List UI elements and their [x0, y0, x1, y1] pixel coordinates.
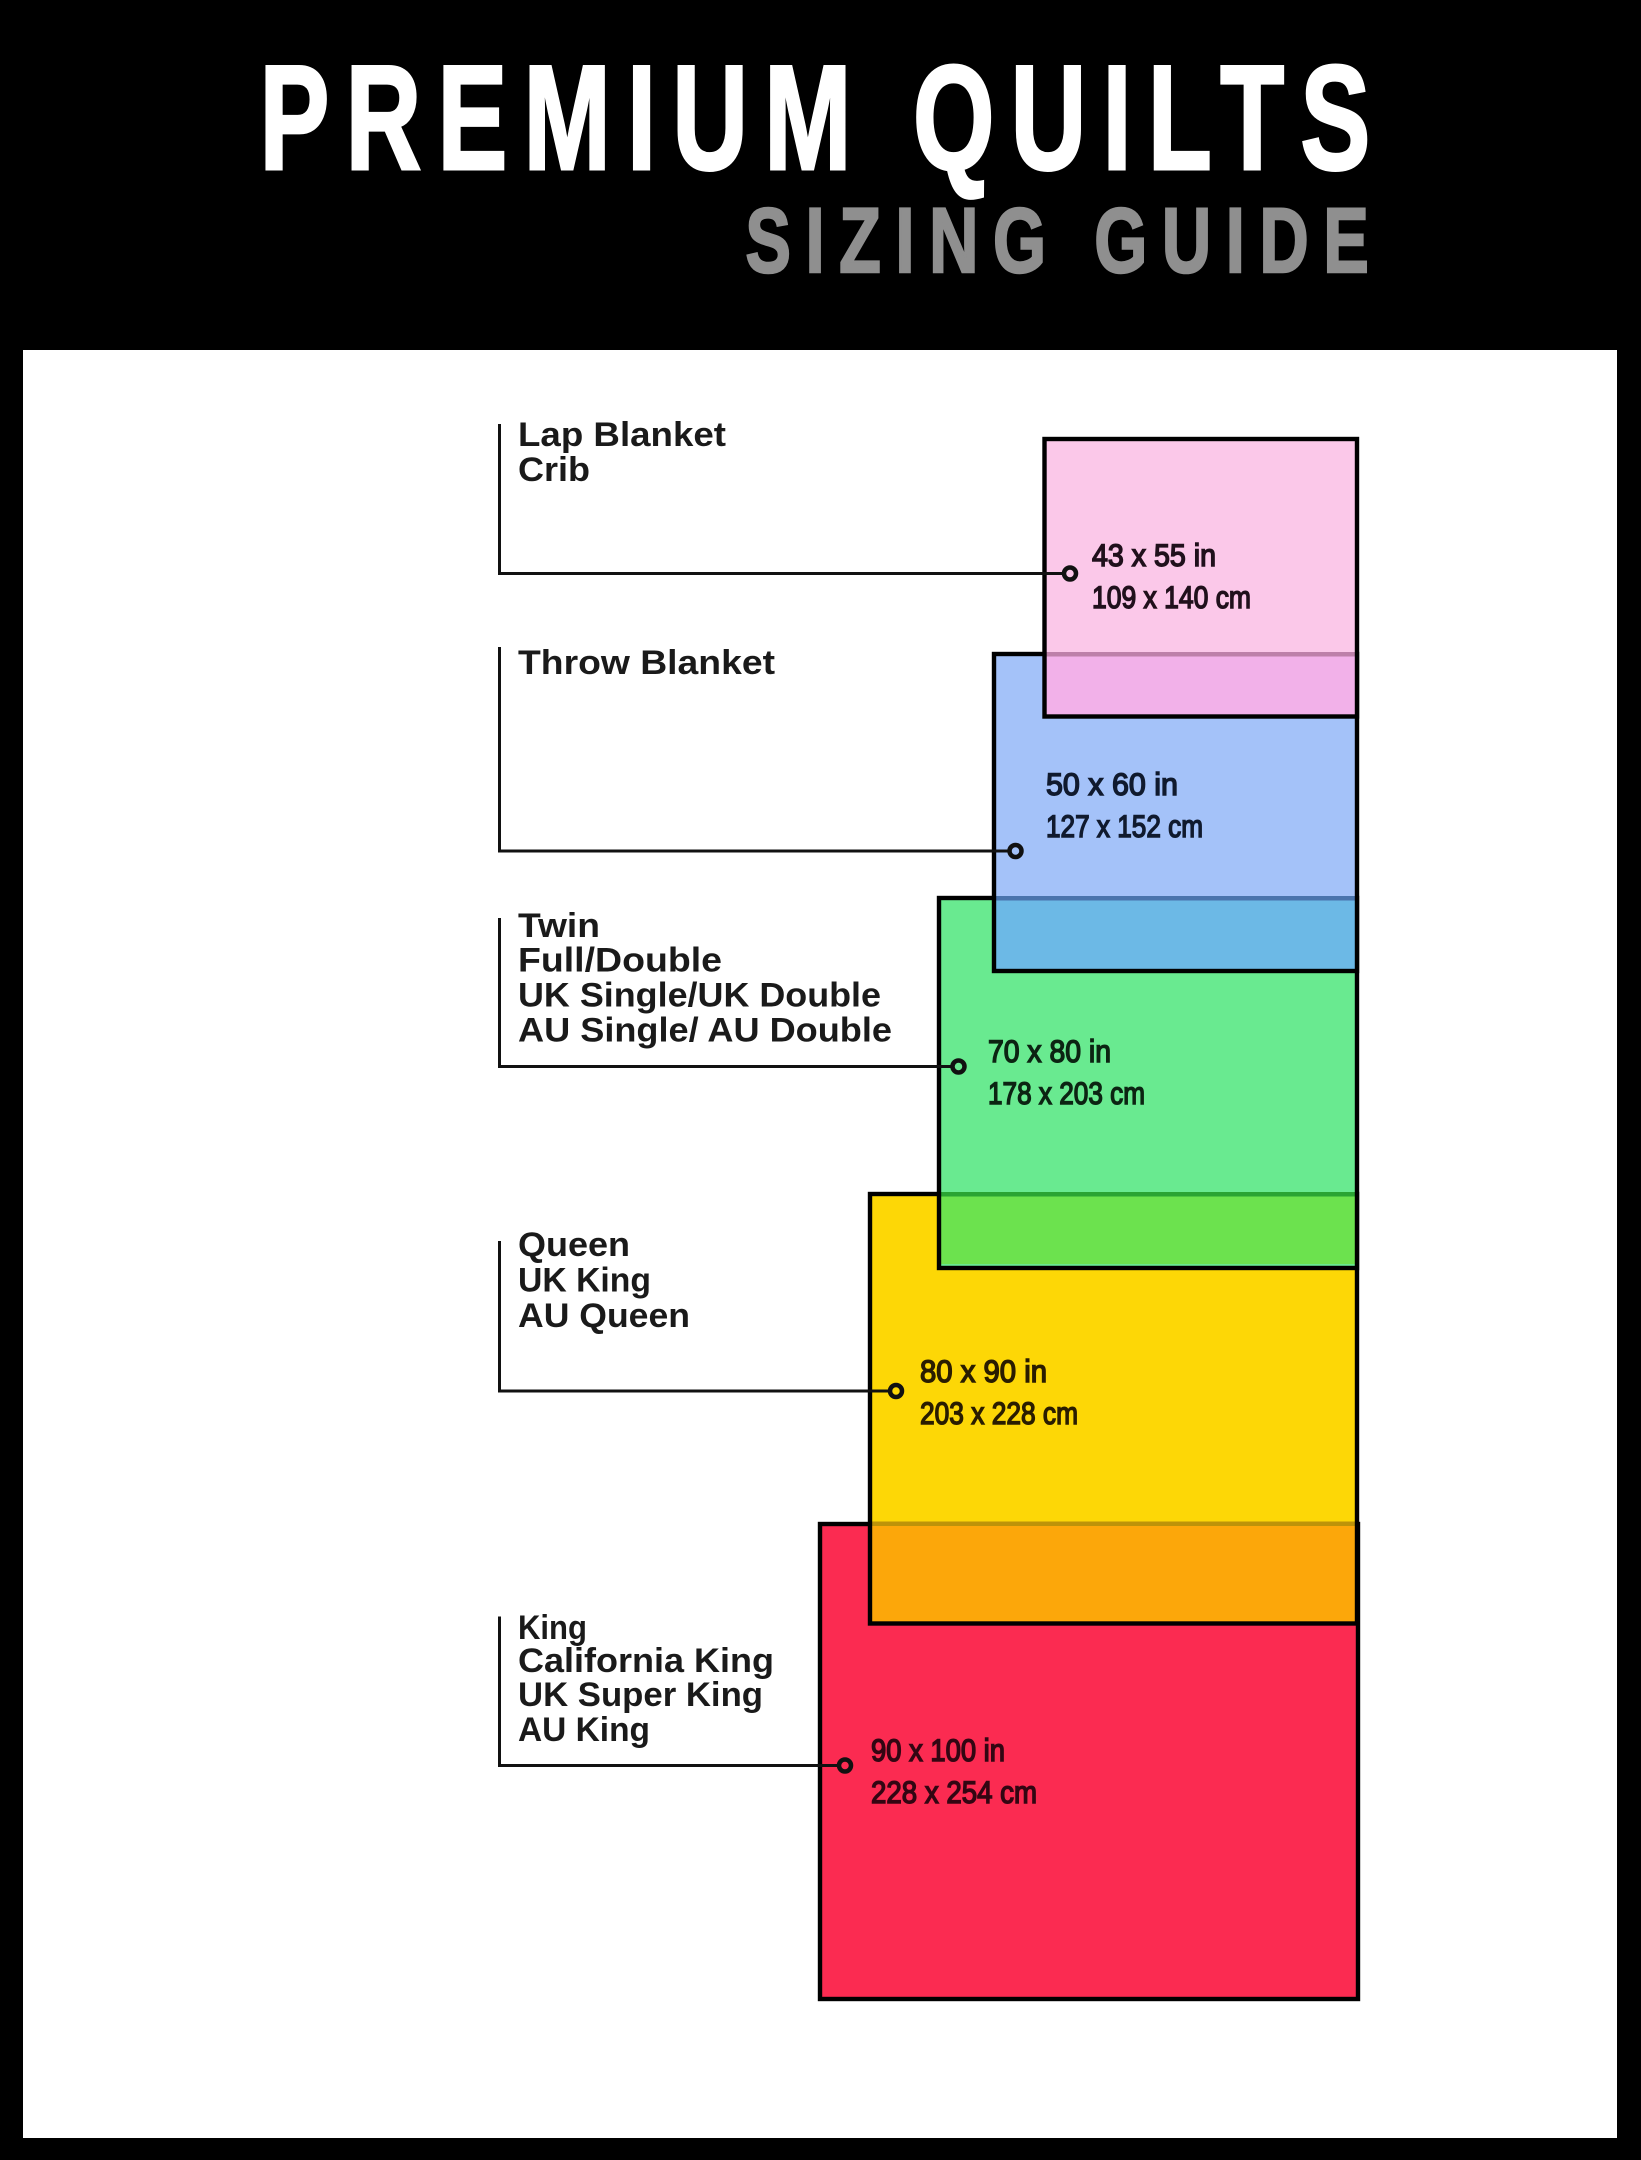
svg-text:SIZING GUIDE: SIZING GUIDE [746, 190, 1384, 292]
svg-text:AU Queen: AU Queen [518, 1297, 690, 1335]
svg-text:90 x 100 in: 90 x 100 in [871, 1732, 1005, 1768]
svg-text:Throw Blanket: Throw Blanket [518, 644, 776, 682]
svg-text:UK King: UK King [518, 1261, 651, 1299]
svg-text:California King: California King [518, 1642, 774, 1680]
svg-text:AU King: AU King [518, 1711, 650, 1749]
svg-text:203 x 228 cm: 203 x 228 cm [920, 1395, 1078, 1431]
svg-text:178 x 203 cm: 178 x 203 cm [988, 1075, 1145, 1111]
svg-text:Lap Blanket: Lap Blanket [518, 416, 727, 454]
svg-text:228 x 254 cm: 228 x 254 cm [871, 1774, 1037, 1810]
svg-text:70 x 80 in: 70 x 80 in [988, 1033, 1111, 1069]
svg-text:109 x 140 cm: 109 x 140 cm [1092, 579, 1251, 615]
svg-text:43 x 55 in: 43 x 55 in [1092, 537, 1216, 573]
svg-text:Queen: Queen [518, 1226, 630, 1264]
svg-text:UK Super King: UK Super King [518, 1676, 763, 1714]
svg-text:127 x 152 cm: 127 x 152 cm [1046, 808, 1203, 844]
svg-text:50 x 60 in: 50 x 60 in [1046, 766, 1178, 802]
svg-text:AU Single/ AU Double: AU Single/ AU Double [518, 1011, 892, 1049]
svg-text:Full/Double: Full/Double [518, 942, 722, 980]
svg-text:Twin: Twin [518, 907, 600, 945]
svg-text:PREMIUM QUILTS: PREMIUM QUILTS [260, 34, 1387, 201]
svg-text:UK Single/UK Double: UK Single/UK Double [518, 977, 881, 1015]
svg-text:80 x 90 in: 80 x 90 in [920, 1353, 1047, 1389]
svg-text:Crib: Crib [518, 451, 590, 489]
